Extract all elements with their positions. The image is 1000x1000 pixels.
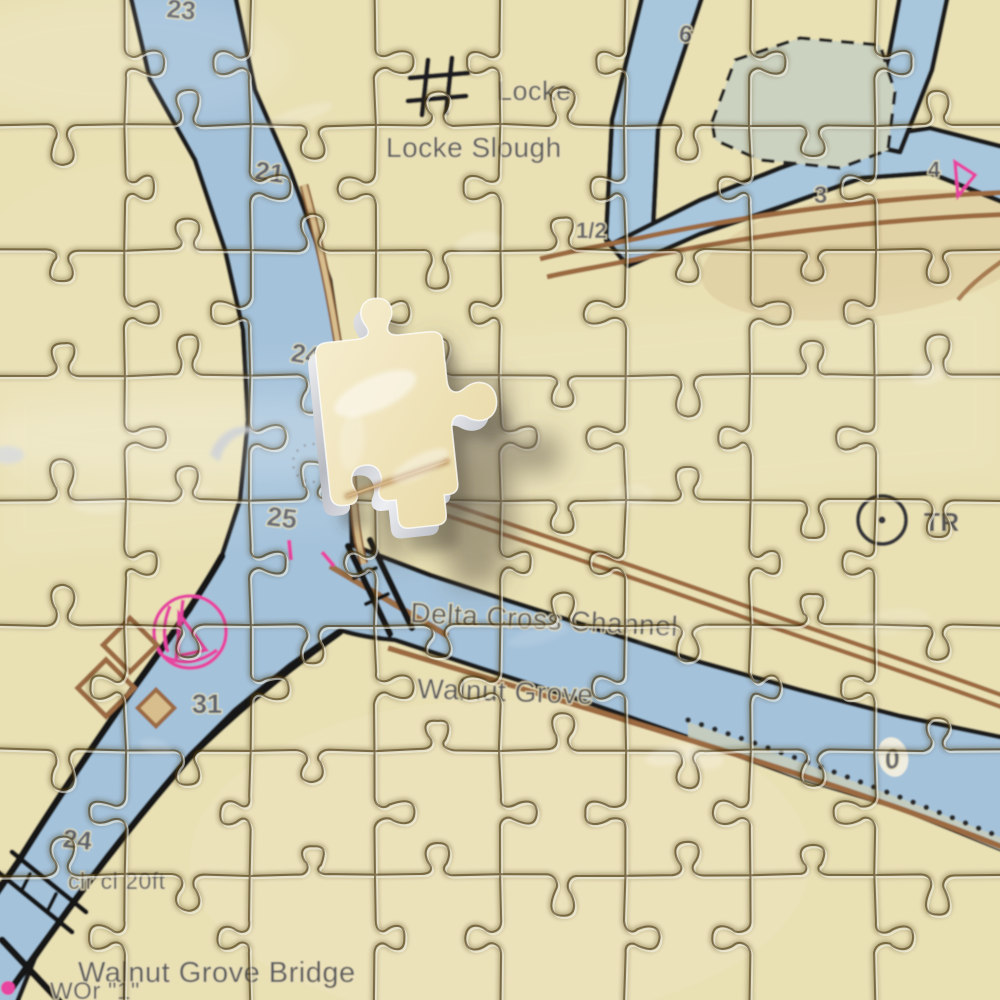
sounding-half: 1/2: [576, 218, 607, 243]
sounding-4: 4: [928, 157, 941, 182]
label-locke: Locke: [497, 76, 572, 106]
pink-junction-mark: [289, 540, 291, 560]
sounding-31: 31: [192, 689, 222, 719]
pink-light-dot: [1, 981, 15, 995]
puzzle-photo: Locke Locke Slough Delta Cross Channel W…: [0, 0, 1000, 1000]
sounding-3: 3: [814, 182, 827, 209]
label-locke-slough: Locke Slough: [386, 132, 562, 163]
label-walnut-grove: Walnut Grove: [417, 673, 594, 710]
knob-glint: [72, 493, 125, 513]
